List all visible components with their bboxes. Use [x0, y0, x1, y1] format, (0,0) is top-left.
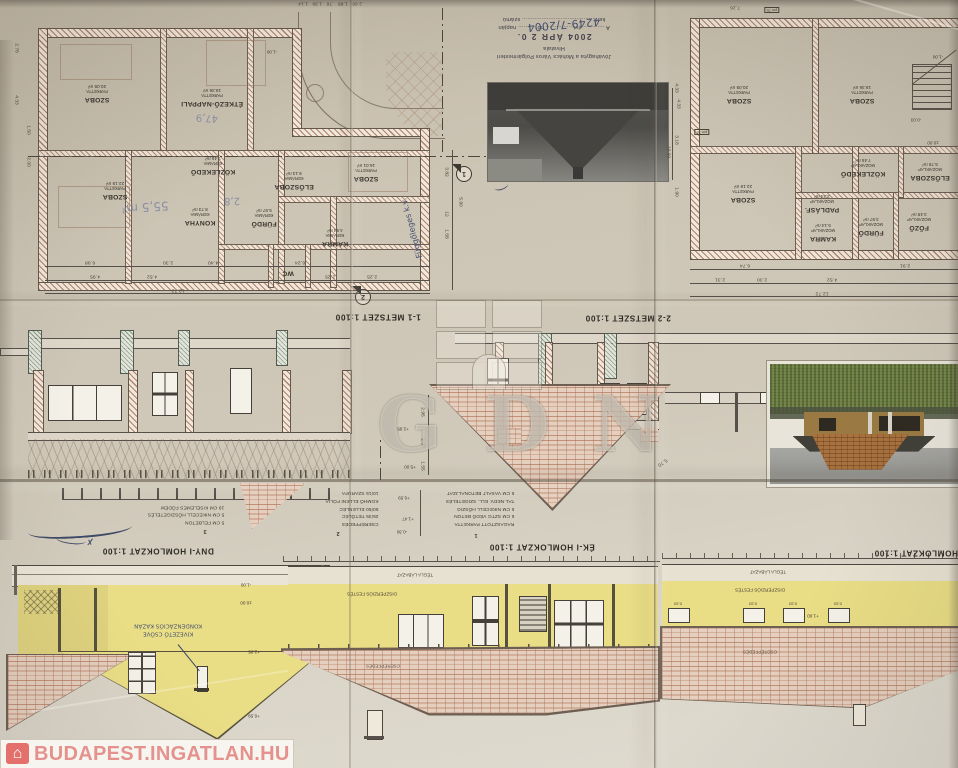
- wall: [690, 18, 958, 28]
- ground-line: [662, 558, 958, 559]
- chimney: [604, 333, 617, 379]
- wall: [38, 28, 302, 38]
- chimney: [120, 330, 134, 374]
- dim: 6.24: [295, 260, 305, 265]
- dim: 2.00: [26, 157, 31, 167]
- tower-block: [492, 331, 542, 359]
- flue-cap: [194, 688, 209, 691]
- chimney-cap: [364, 736, 384, 739]
- edge-shadow: [0, 40, 14, 540]
- wall: [38, 28, 48, 291]
- wall: [292, 128, 430, 137]
- photo-ground: [488, 159, 542, 181]
- room-label: KAMRA KERÁMIA 4.94 m²: [322, 227, 348, 247]
- level: -0.30: [397, 530, 407, 535]
- chimney: [28, 330, 42, 374]
- level: -1.00: [933, 55, 943, 60]
- post: [505, 584, 508, 648]
- room-label: SZOBA PARKETTA 20.09 m²: [85, 83, 110, 103]
- wall: [690, 250, 958, 260]
- dim: 6.98: [85, 260, 95, 265]
- partition: [812, 18, 819, 154]
- post: [735, 392, 738, 432]
- partition: [795, 146, 802, 260]
- window-triple: [398, 614, 444, 648]
- dim: 1.50: [26, 125, 31, 135]
- level: -1.00: [241, 583, 251, 588]
- wall: [342, 370, 352, 434]
- room-label: KÖZLEKEDŐ KERÁMIA 7.46 m²: [191, 155, 235, 175]
- wall: [292, 28, 302, 136]
- note-marker: 2: [336, 530, 339, 536]
- wall: [38, 282, 430, 291]
- dim-line: [45, 280, 430, 281]
- dim: 2.78: [14, 43, 19, 53]
- wall: [185, 370, 194, 434]
- wall: [33, 370, 44, 434]
- window-size: 0.33: [749, 602, 757, 607]
- render-window: [879, 416, 920, 432]
- small-window: [783, 608, 805, 623]
- level: ±0.00: [240, 601, 251, 606]
- dim-line: [420, 490, 421, 536]
- window: [152, 372, 178, 416]
- post: [548, 584, 551, 648]
- house-icon: ⌂: [6, 743, 29, 764]
- room-label: PADLÁSF. MOZAIKLAP 3.24 m²: [805, 193, 839, 213]
- wall: [282, 370, 291, 434]
- dim: 2.25: [325, 274, 335, 279]
- dim: 4.33: [14, 95, 19, 105]
- photo-trees: [488, 83, 668, 110]
- chimney: [276, 330, 288, 366]
- staircase: [912, 64, 952, 110]
- section-title: 1-1 METSZET 1:100: [335, 313, 421, 322]
- roof-label: CSERÉPFEDÉS: [366, 664, 400, 669]
- downpipe: [14, 565, 17, 595]
- plinth-label: TÉGLA LÁBAZAT: [397, 573, 433, 578]
- dim: 4.52: [147, 274, 157, 279]
- dim: 2.31: [715, 277, 725, 282]
- room-name: SZOBA: [85, 95, 110, 103]
- dim: 5.90: [458, 197, 463, 207]
- room-label: KAMRA MOZAIKLAP 5.14 m²: [810, 222, 836, 242]
- window-size: 0.33: [789, 602, 797, 607]
- stamp-line: kelt ...................................…: [450, 14, 658, 22]
- dim: 2.91: [900, 263, 910, 268]
- note-marker: 3: [203, 528, 206, 534]
- dim-line: [690, 296, 958, 297]
- elevation-title: HOMLOKZAT 1:100: [874, 549, 958, 558]
- room-label: SZOBA PARKETTA 22.19 m²: [731, 183, 756, 203]
- construction-notes: 5 CM FELBETON 5 CM NIKECELL HŐSZIGETELÉS…: [148, 502, 225, 525]
- dim: 4.33: [674, 83, 679, 93]
- grass-ticks: [283, 556, 660, 561]
- door: [472, 596, 499, 646]
- room-label: SZOBA PARKETTA 16.01 m²: [354, 162, 379, 182]
- level: -0.03: [911, 118, 921, 123]
- elevation-title: ÉK-I HOMLOKZAT 1:100: [489, 543, 595, 552]
- stamp-line: Jóváhagyta a Mohács Város Polgármesteri: [450, 52, 658, 60]
- dim: 2.30: [757, 277, 767, 282]
- dim: 4.52: [827, 277, 837, 282]
- gdn-tower-watermark: [436, 300, 544, 392]
- wall: [690, 18, 700, 260]
- property-line: [442, 4, 443, 152]
- paint-label: DISZPERZIÓS FESTÉS: [347, 592, 397, 597]
- pm-mark: pm 70: [695, 129, 710, 135]
- terrace-tree: [306, 84, 324, 102]
- note-marker: 1: [474, 532, 477, 538]
- approval-stamp: Jóváhagyta a Mohács Város Polgármesteri …: [450, 2, 658, 60]
- photo-white-object: [493, 127, 518, 144]
- window-size: 0.33: [834, 602, 842, 607]
- stamp-line: Hivatala: [450, 43, 658, 51]
- dim: 7.26: [730, 5, 740, 10]
- level: +1.47: [402, 517, 414, 522]
- furniture: [60, 44, 132, 80]
- level: +2.95: [248, 650, 260, 655]
- wall: [128, 370, 138, 434]
- porch-post: [94, 588, 97, 652]
- photo-chimney: [573, 167, 584, 179]
- dim-line: [45, 293, 430, 294]
- dim: 1.58: [444, 229, 449, 239]
- partition: [160, 28, 167, 156]
- dim-line: [452, 150, 453, 290]
- dim: 12.72: [171, 288, 184, 293]
- post: [612, 584, 615, 648]
- dim-line: [672, 88, 673, 180]
- marker-flag: [452, 164, 461, 173]
- lattice: [24, 590, 58, 614]
- dim: 12.72: [815, 291, 828, 296]
- pencil-note: 2,8: [224, 194, 240, 207]
- eaves-band: [12, 565, 330, 587]
- dim: 4.33: [676, 99, 681, 109]
- chimney: [178, 330, 190, 366]
- terrace-level: -1.00: [267, 50, 277, 55]
- roof-label: CSERÉPFEDÉS: [743, 650, 777, 655]
- small-window: [668, 608, 690, 623]
- roof-hatch: [662, 628, 958, 710]
- room-label: FŐZŐ MOZAIKLAP 3.48 m²: [907, 211, 931, 231]
- door: [230, 368, 252, 414]
- partition: [898, 146, 904, 198]
- roof-hatch-piece: [240, 483, 306, 529]
- level: ±0.00: [927, 141, 938, 146]
- elevation-title: DNY-I HOMLOKZAT 1:100: [102, 547, 214, 556]
- stamp-date: 2004 ÁPR 2 0.: [450, 32, 658, 42]
- room-label: FÜRDŐ KERÁMIA 5.97 m²: [251, 207, 276, 227]
- level: +6.59: [398, 496, 410, 501]
- dim: 4.95: [90, 274, 100, 279]
- room-label: WC: [282, 267, 294, 276]
- pen-annotation: KIVEZETŐ CSÖVE KONDENZÁCIÓS KAZÁN: [134, 621, 202, 638]
- small-window: [743, 608, 765, 623]
- dim: 3.18: [674, 135, 679, 145]
- room-label: SZOBA PARKETTA 19.36 m²: [850, 84, 875, 104]
- room-label: KÖZLEKEDŐ MOZAIKLAP 7.46 m²: [841, 157, 885, 177]
- pencil-note: 55,5 m²: [121, 198, 169, 216]
- gdn-watermark-text: GDN: [375, 380, 705, 469]
- dim: 2.68 1.88 .76 1.30 1.14: [298, 2, 362, 7]
- section-title: 2-2 METSZET 1:100: [585, 314, 671, 323]
- level: +6.59: [248, 714, 260, 719]
- blueprint-photo: -1.00 SZOBA PARKETTA 20.09 m² ÉTK: [0, 0, 958, 768]
- furniture: [206, 40, 266, 86]
- construction-notes-roof: CSERÉPFEDÉS 25/35 TETŐLÉC 50/50 ELLENLÉC…: [326, 489, 379, 527]
- construction-notes-floor: RAGASZTOTT PARKETTA 5 CM SZTG VÉDŐ BETON…: [446, 489, 515, 527]
- dim: 2.25: [367, 274, 377, 279]
- partition: [690, 146, 958, 154]
- ground-line: [283, 561, 660, 562]
- dim: 6.74: [740, 263, 750, 268]
- render-image: [770, 364, 958, 484]
- level: +1.60: [807, 614, 819, 619]
- rafter-ticks: [28, 470, 350, 478]
- gutter-line: [12, 574, 330, 575]
- room-label: FÜRDŐ MOZAIKLAP 3.97 m²: [858, 216, 883, 236]
- pm-mark: pm 70: [765, 7, 780, 13]
- room-label: ELŐSZOBA MOZAIKLAP 5.75 m²: [910, 161, 949, 181]
- dim: 4.40: [208, 260, 218, 265]
- chimney: [853, 704, 866, 726]
- tower-block: [492, 300, 542, 328]
- small-window: [828, 608, 850, 623]
- room-label: KONYHA KERÁMIA 8.73 m²: [185, 206, 216, 226]
- roller-shutter: [519, 596, 547, 632]
- site-logo-text: BUDAPEST.INGATLAN.HU: [34, 743, 290, 766]
- room-floor: PARKETTA: [85, 89, 110, 94]
- room-label: ÉTKEZŐ-NAPPALI PARKETTA 19.36 m²: [181, 87, 243, 107]
- tower-block: [436, 331, 486, 359]
- dim-line: [690, 269, 958, 270]
- window: [48, 385, 122, 421]
- wall-yellow: [662, 581, 958, 629]
- site-watermark-bar: ⌂ BUDAPEST.INGATLAN.HU: [0, 739, 294, 768]
- dim: 1.90: [674, 187, 679, 197]
- gable-window: [128, 652, 156, 694]
- glazed-porch: [554, 600, 604, 648]
- bw-house-photo: [487, 82, 669, 182]
- paint-label: DISZPERZIÓS FESTÉS: [735, 588, 785, 593]
- room-label: ELŐSZOBA KERÁMIA 9.13 m²: [274, 170, 313, 190]
- pen-x-mark: ✗: [86, 535, 94, 546]
- plinth-label: TÉGLA LÁBAZAT: [750, 570, 786, 575]
- dim: 12: [444, 211, 449, 216]
- dim-line: [45, 266, 430, 267]
- room-label: SZOBA PARKETTA 22.19 m²: [103, 180, 128, 200]
- porch-post: [58, 588, 61, 652]
- render-photo: [766, 360, 958, 488]
- room-area: 20.09 m²: [85, 83, 110, 89]
- dim: 2.30: [163, 260, 173, 265]
- pencil-note: 47,9: [196, 110, 219, 123]
- render-window: [819, 418, 836, 431]
- room-label: SZOBA PARKETTA 20.09 m²: [727, 84, 752, 104]
- dim-line: [690, 283, 958, 284]
- window-size: 0.33: [674, 602, 682, 607]
- partition: [893, 192, 899, 260]
- photo-eave-line: [506, 109, 650, 111]
- dim: 3.82: [444, 167, 449, 177]
- plinth-band: [288, 566, 658, 586]
- tower-block: [436, 300, 486, 328]
- dim: 10.00: [666, 146, 671, 158]
